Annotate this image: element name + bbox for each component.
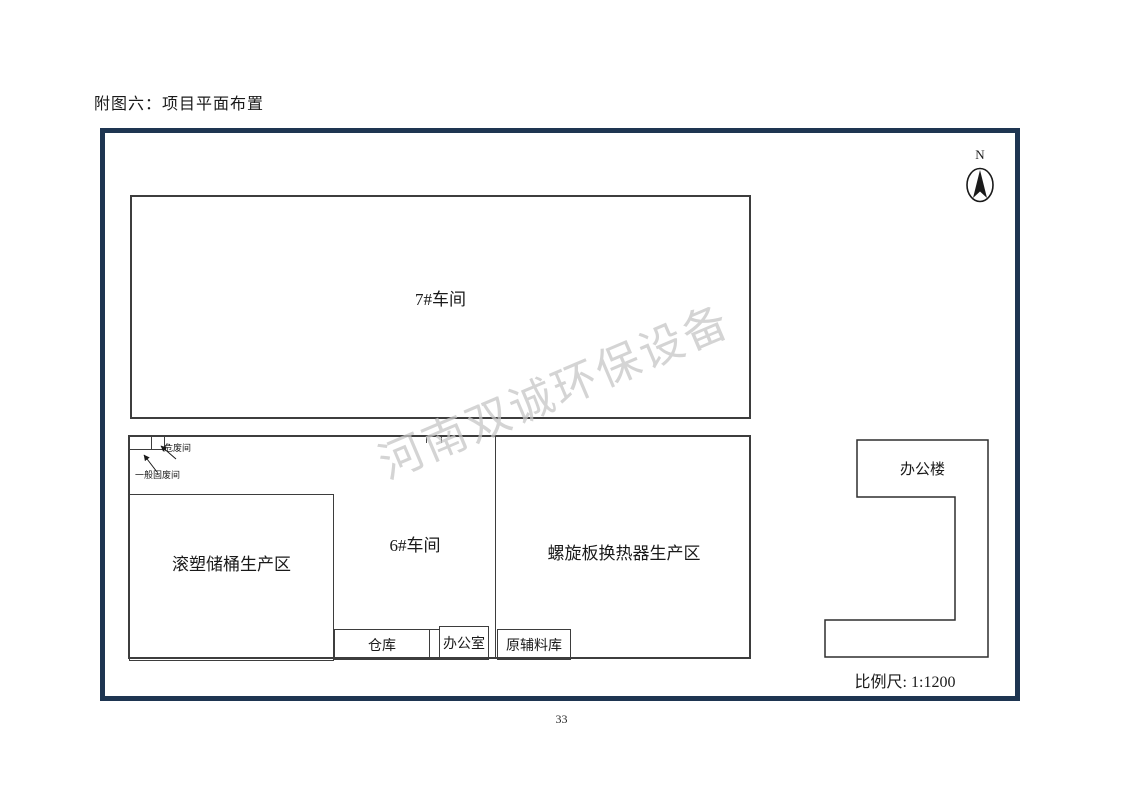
rotomolding-label: 滚塑储桶生产区 <box>172 550 291 575</box>
raw-material-label: 原辅料库 <box>498 630 570 659</box>
workshop6-label: 6#车间 <box>335 531 495 556</box>
rotomolding-area: 滚塑储桶生产区 <box>129 494 334 661</box>
general-waste-label: 一般固废间 <box>135 468 180 481</box>
warehouse-room: 仓库 <box>334 629 430 660</box>
warehouse-label: 仓库 <box>335 630 429 659</box>
north-label: N <box>965 147 995 163</box>
office-room-label: 办公室 <box>440 627 488 659</box>
hazardous-waste-label: 危废间 <box>164 441 191 454</box>
raw-material-warehouse: 原辅料库 <box>497 629 571 660</box>
figure-title: 附图六：项目平面布置 <box>94 90 264 114</box>
workshop7-label: 7#车间 <box>415 285 466 310</box>
general-solid-waste-room <box>129 436 152 450</box>
building-workshop7: 7#车间 <box>130 195 751 419</box>
door-mark <box>426 437 442 443</box>
building-production: 危废间 一般固废间 滚塑储桶生产区 6#车间 螺旋板换热器生产区 仓库 <box>128 435 751 659</box>
hazardous-waste-room <box>151 436 165 450</box>
site-plan-frame: N 7#车间 危废间 一般固废间 <box>100 128 1020 701</box>
page-number: 33 <box>0 712 1123 727</box>
document-page: 附图六：项目平面布置 N 7#车间 危废间 一般固废间 <box>0 0 1123 794</box>
office-room: 办公室 <box>439 626 489 660</box>
north-arrow-icon <box>965 165 995 205</box>
scale-label: 比例尺: 1:1200 <box>810 668 1000 692</box>
office-building-label: 办公楼 <box>857 440 988 497</box>
spiral-area-label: 螺旋板换热器生产区 <box>496 539 752 564</box>
